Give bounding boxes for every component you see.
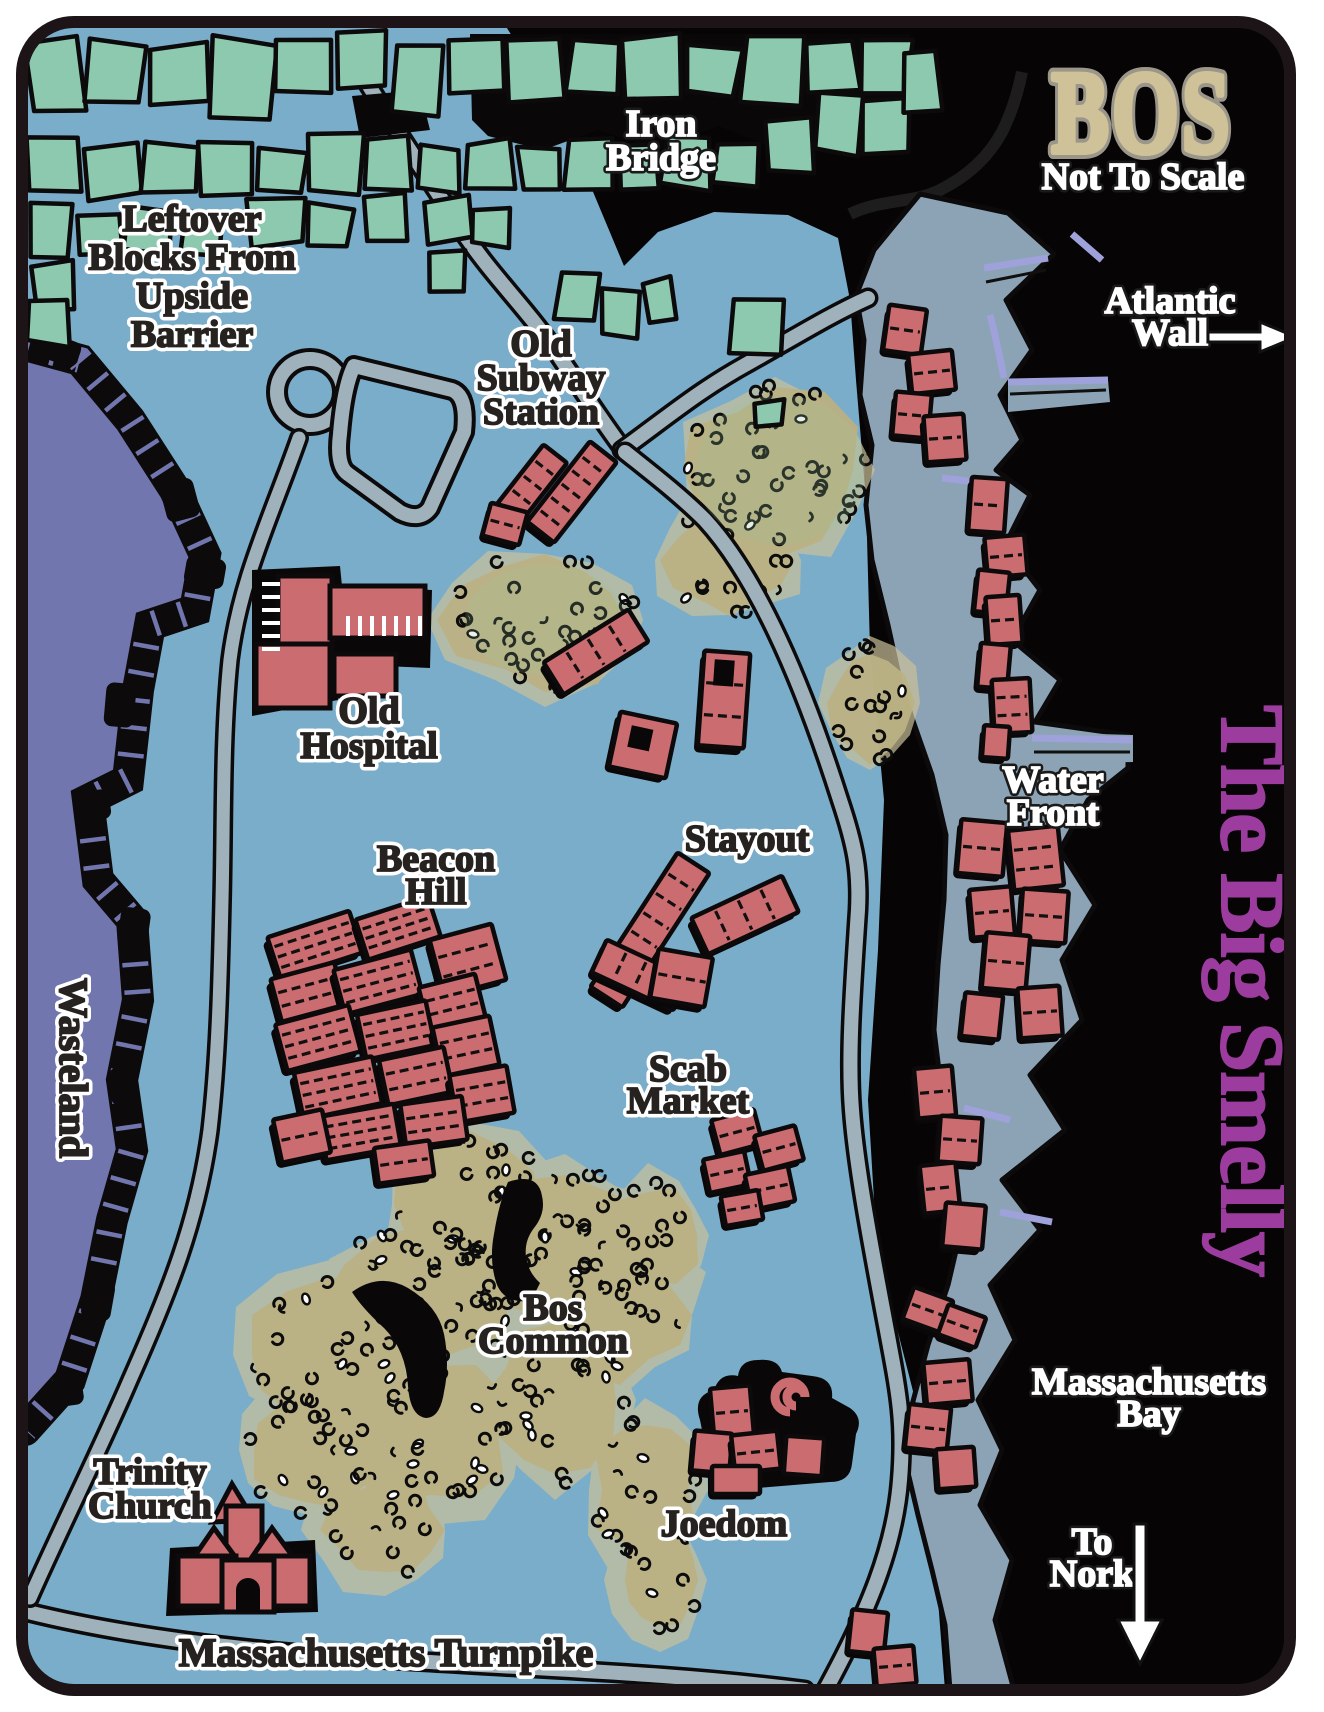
svg-text:Hospital: Hospital xyxy=(300,725,437,767)
svg-text:Common: Common xyxy=(478,1320,628,1362)
svg-text:Nork: Nork xyxy=(1050,1553,1135,1595)
svg-text:Market: Market xyxy=(627,1080,750,1122)
svg-text:Barrier: Barrier xyxy=(131,314,254,356)
svg-text:Massachusetts Turnpike: Massachusetts Turnpike xyxy=(179,1630,594,1675)
svg-text:BOS: BOS xyxy=(1051,48,1232,178)
svg-text:Bay: Bay xyxy=(1117,1393,1180,1435)
svg-text:Wasteland: Wasteland xyxy=(51,978,96,1158)
svg-text:Blocks From: Blocks From xyxy=(88,237,295,279)
svg-text:Station: Station xyxy=(483,391,599,433)
svg-text:Front: Front xyxy=(1007,792,1100,834)
svg-text:Leftover: Leftover xyxy=(122,198,261,240)
svg-text:Wall: Wall xyxy=(1132,312,1208,354)
svg-text:Church: Church xyxy=(88,1485,212,1527)
svg-text:Hill: Hill xyxy=(405,871,466,913)
svg-text:Upside: Upside xyxy=(136,275,248,317)
svg-text:Stayout: Stayout xyxy=(685,818,810,860)
svg-text:Joedom: Joedom xyxy=(661,1503,788,1545)
svg-text:Bridge: Bridge xyxy=(606,137,716,179)
